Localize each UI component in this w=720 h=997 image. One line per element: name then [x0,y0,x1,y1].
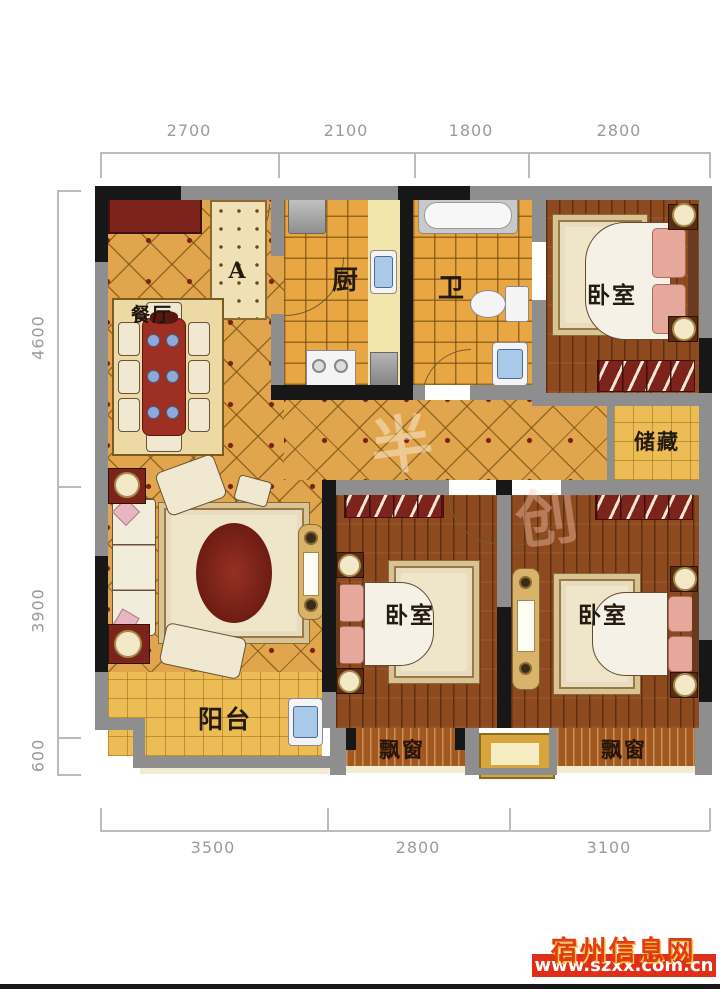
dresser-knob [519,576,532,589]
living-lamp [114,630,142,658]
dim-top-4: 2800 [579,121,659,140]
bay-sill [346,766,465,773]
tv-speaker [304,531,318,545]
watermark-site-name: 宿州信息网 [528,929,718,968]
left-dimension-line [57,190,59,775]
table-plate [147,406,160,419]
dining-room-label: 餐厅 [116,300,188,327]
living-bedroom2-wall [322,692,336,728]
dim-tick [709,152,711,178]
living-bedroom2-wall [322,480,336,692]
table-plate [166,406,179,419]
dim-bottom-1: 3500 [173,838,253,857]
dining-chair [118,322,140,356]
tv-speaker [304,598,318,612]
bedroom2-label: 卧室 [375,596,445,630]
bedroom1-lamp [672,317,696,341]
dim-tick [327,808,329,831]
dim-top-3: 1800 [431,121,511,140]
dim-tick [57,486,81,488]
dim-tick [414,152,416,178]
living-lamp [114,472,140,498]
top-dimension-line [100,152,710,154]
kitchen-cabinet [370,352,398,386]
dining-chair [188,360,210,394]
hall-bottom-wall [330,480,449,495]
bay-window-right-label: 飘窗 [587,734,661,764]
hall-bottom-wall [561,480,712,495]
wall-black-segment [95,186,108,262]
bay-sill [557,766,695,773]
shoe-cabinet [108,196,202,234]
stove-burner [312,359,326,373]
table-plate [147,334,160,347]
bath-label: 卫 [432,268,472,305]
bedroom3-lamp [673,567,697,591]
balcony-sill [140,768,332,774]
dim-tick [57,774,81,776]
bedroom2-pillow [338,584,364,622]
bedroom1-label: 卧室 [577,276,647,310]
balcony-bottom-wall [133,756,332,768]
kitchen-left-wall [271,200,284,256]
bay-corner-black [455,728,465,750]
bath-right-wall [532,300,546,406]
dim-bottom-2: 2800 [378,838,458,857]
dim-tick [278,152,280,178]
kitchen-sink-basin [374,256,393,288]
dim-left-1: 4600 [29,298,48,378]
bay-corner-black [346,728,356,750]
table-plate [166,370,179,383]
dim-bottom-3: 3100 [569,838,649,857]
bath-sink-basin [497,349,523,379]
toilet-tank [505,286,529,322]
hall-bottom-wall-black [496,480,512,495]
wall-black-segment [699,640,712,702]
dining-chair [188,322,210,356]
wall-black-segment [398,186,470,200]
wall-black-segment [95,556,108,672]
hallway-floor [284,400,607,480]
dining-chair [118,398,140,432]
bedroom1-lamp [672,203,696,227]
bath-bottom-wall [470,385,532,400]
bedroom2-pillow [338,626,364,664]
dim-tick [509,808,511,831]
bottom-divider-line [0,984,720,989]
bedroom-divider-wall [497,495,511,607]
bay-side-wall [549,728,557,768]
ac-platform-base [465,768,557,775]
toilet-bowl [470,290,506,318]
bay-side-wall [465,728,479,768]
entry-mat-label: A [222,258,254,284]
dim-top-2: 2100 [306,121,386,140]
bath-bottom-wall [413,385,425,400]
bathtub-inner [424,202,512,229]
bedroom3-pillow [668,636,694,672]
dresser-panel [517,600,535,652]
dim-tick [528,152,530,178]
bedroom3-pillow [668,596,694,632]
floor-plan-page: 2700 2100 1800 2800 4600 3900 600 3500 2… [0,0,720,997]
bedroom1-bottom-wall [532,393,712,406]
dim-top-1: 2700 [149,121,229,140]
washing-machine-door [293,706,318,738]
ac-platform-inner [491,743,539,765]
dim-tick [100,808,102,831]
wall-black-segment [699,338,712,400]
bath-right-wall [532,186,546,242]
bay-side-wall [695,728,712,775]
balcony-label: 阳台 [182,700,268,736]
dresser-knob [519,662,532,675]
bedroom-divider-wall-black [497,607,511,728]
bedroom3-label: 卧室 [568,596,638,630]
bay-window-middle-label: 飘窗 [365,734,439,764]
dim-tick [57,737,81,739]
dining-chair [118,360,140,394]
kitchen-label: 厨 [326,260,366,297]
dining-chair [188,398,210,432]
living-rug-oval [196,523,272,623]
bedroom3-lamp [673,673,697,697]
dim-tick [709,808,711,831]
bedroom3-headboard [692,592,699,676]
kitchen-bottom-wall [271,385,413,400]
table-plate [147,370,160,383]
dim-left-2: 3900 [29,571,48,651]
dim-left-3: 600 [29,716,48,796]
bottom-dimension-line [100,830,710,832]
bedroom1-pillow [652,228,686,278]
fridge [288,198,326,234]
kitchen-bath-wall [400,200,413,390]
bedroom2-lamp [338,670,361,693]
storage-left-wall [607,406,614,480]
stove-burner [334,359,348,373]
storage-label: 储藏 [620,426,694,456]
dim-tick [57,190,81,192]
bay-side-wall [330,728,346,775]
table-plate [166,334,179,347]
bedroom1-wardrobe [597,360,695,392]
dim-tick [100,152,102,178]
bedroom2-lamp [338,554,361,577]
tv-screen [303,552,319,596]
